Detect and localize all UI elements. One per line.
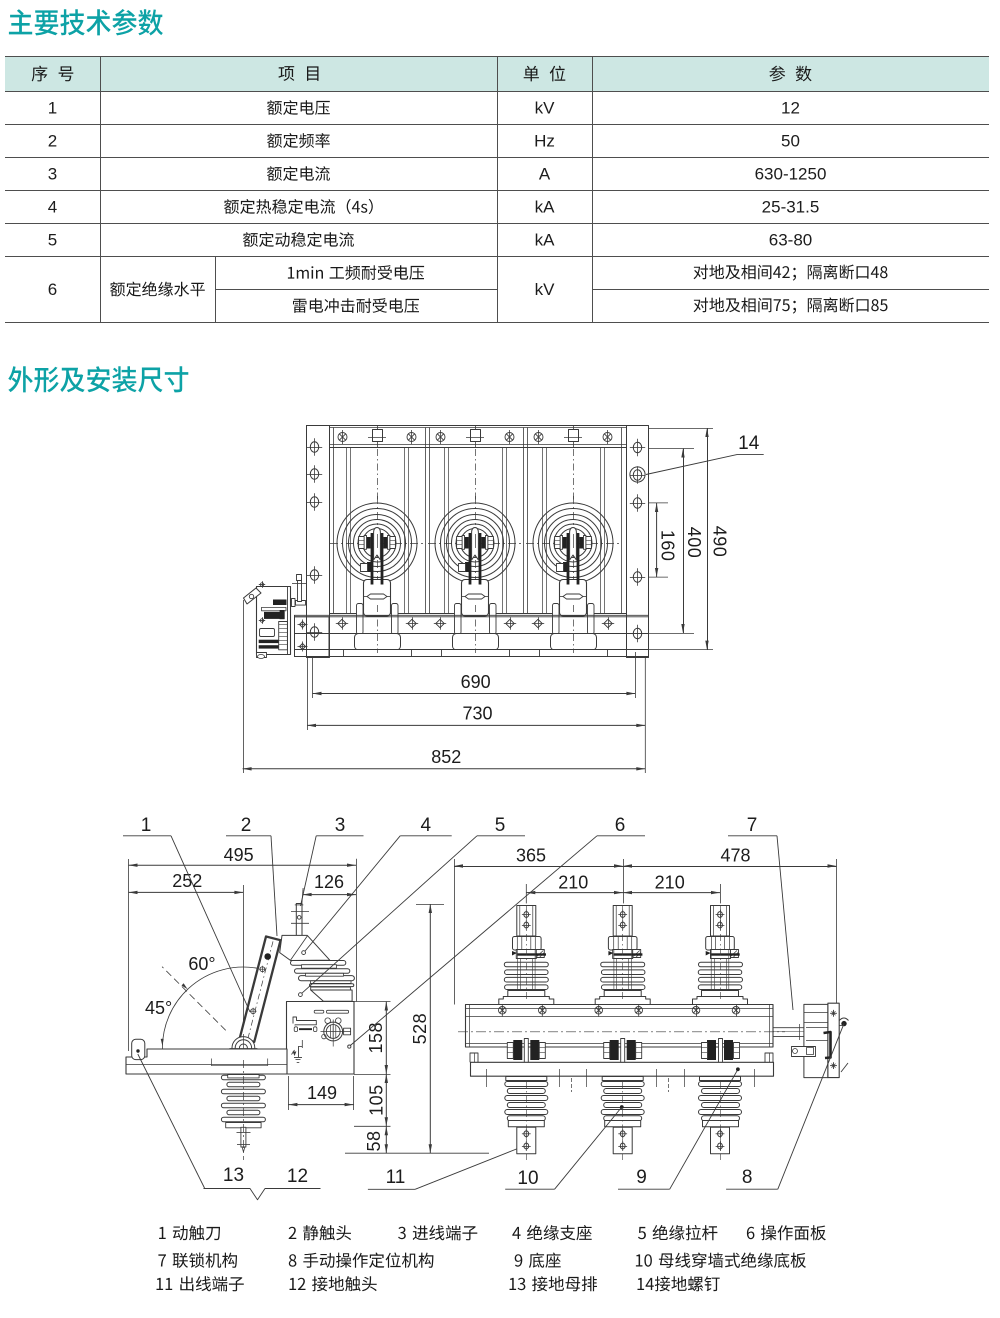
svg-text:160: 160: [658, 530, 678, 562]
svg-text:25-31.5: 25-31.5: [762, 197, 820, 216]
svg-text:126: 126: [314, 872, 344, 892]
svg-text:210: 210: [655, 873, 685, 893]
svg-text:690: 690: [461, 672, 491, 692]
svg-text:kV: kV: [535, 280, 556, 299]
svg-text:490: 490: [709, 526, 729, 558]
svg-text:12: 12: [287, 1166, 308, 1187]
svg-text:730: 730: [462, 704, 492, 724]
svg-text:58: 58: [364, 1130, 384, 1151]
svg-text:8: 8: [742, 1167, 753, 1188]
svg-text:1: 1: [141, 815, 152, 836]
svg-text:63-80: 63-80: [769, 230, 812, 249]
svg-text:6: 6: [48, 280, 57, 299]
svg-text:478: 478: [720, 846, 750, 866]
svg-text:210: 210: [558, 873, 588, 893]
svg-text:528: 528: [410, 1013, 430, 1045]
svg-text:10: 10: [517, 1168, 538, 1189]
svg-text:A: A: [539, 164, 551, 183]
svg-text:158: 158: [366, 1022, 386, 1054]
svg-text:105: 105: [366, 1084, 386, 1116]
svg-text:3: 3: [335, 815, 346, 836]
svg-text:2: 2: [241, 815, 252, 836]
svg-text:9: 9: [636, 1167, 647, 1188]
svg-text:7: 7: [747, 815, 758, 836]
svg-text:5: 5: [48, 230, 57, 249]
svg-text:50: 50: [781, 131, 800, 150]
svg-text:Hz: Hz: [534, 131, 555, 150]
svg-text:3: 3: [48, 164, 57, 183]
svg-text:365: 365: [516, 846, 546, 866]
svg-text:6: 6: [615, 815, 626, 836]
svg-text:11: 11: [386, 1167, 406, 1188]
svg-text:4: 4: [48, 197, 57, 216]
svg-text:1: 1: [48, 98, 57, 117]
svg-text:5: 5: [495, 815, 506, 836]
svg-text:kV: kV: [535, 98, 556, 117]
svg-text:400: 400: [684, 527, 704, 559]
svg-text:149: 149: [307, 1083, 337, 1103]
svg-text:kA: kA: [535, 230, 556, 249]
svg-text:60°: 60°: [188, 954, 215, 974]
svg-text:630-1250: 630-1250: [755, 164, 827, 183]
svg-text:12: 12: [781, 98, 800, 117]
svg-text:14: 14: [738, 433, 760, 454]
svg-text:495: 495: [224, 845, 254, 865]
svg-text:kA: kA: [535, 197, 556, 216]
svg-text:252: 252: [172, 871, 202, 891]
svg-text:45°: 45°: [145, 998, 172, 1018]
svg-text:852: 852: [431, 747, 461, 767]
svg-text:4: 4: [421, 815, 432, 836]
svg-text:13: 13: [223, 1165, 244, 1186]
svg-text:2: 2: [48, 131, 57, 150]
